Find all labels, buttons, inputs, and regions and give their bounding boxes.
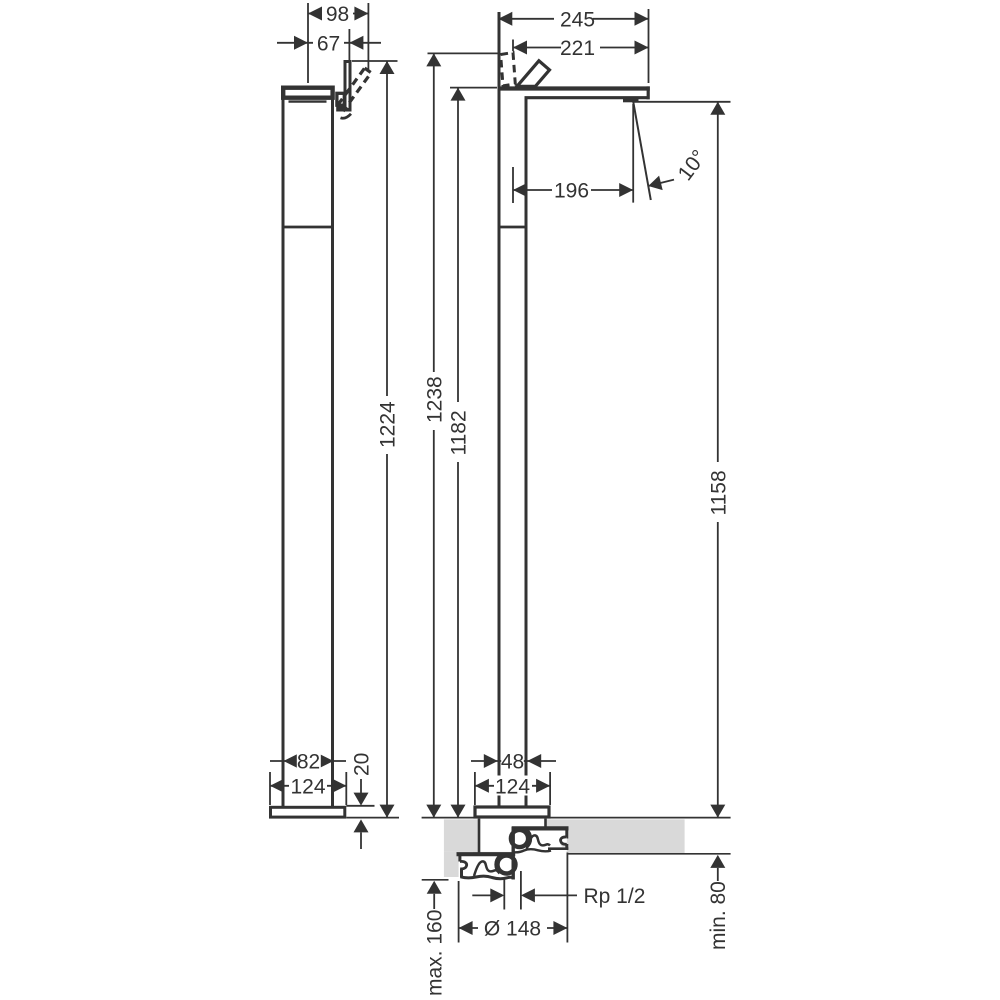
svg-text:245: 245: [560, 8, 595, 31]
svg-text:98: 98: [326, 3, 349, 26]
svg-text:221: 221: [560, 37, 595, 60]
svg-text:Rp 1/2: Rp 1/2: [584, 885, 646, 908]
svg-text:124: 124: [290, 775, 325, 798]
svg-text:Ø 148: Ø 148: [484, 918, 541, 941]
svg-text:1182: 1182: [448, 410, 471, 455]
svg-text:1224: 1224: [377, 401, 400, 448]
svg-text:max. 160: max. 160: [424, 910, 447, 996]
svg-text:67: 67: [317, 32, 340, 55]
svg-text:min. 80: min. 80: [707, 881, 730, 950]
svg-text:48: 48: [501, 751, 524, 774]
svg-text:82: 82: [297, 751, 320, 774]
svg-text:20: 20: [351, 753, 374, 776]
svg-text:124: 124: [495, 775, 530, 798]
svg-text:1238: 1238: [423, 376, 446, 423]
svg-text:196: 196: [554, 179, 589, 202]
svg-text:1158: 1158: [707, 470, 730, 515]
